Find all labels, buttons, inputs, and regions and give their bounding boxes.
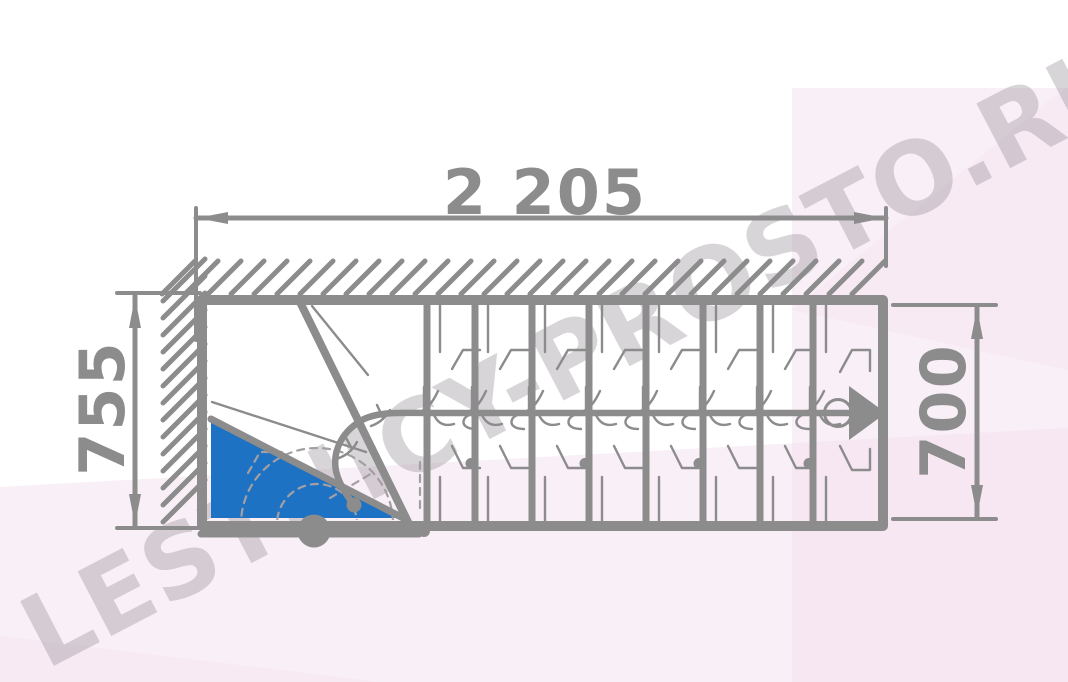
wall-hatch-top <box>162 261 885 294</box>
dim-arrow-up-icon <box>971 308 983 339</box>
walk-line-start-dot <box>347 498 362 513</box>
walk-line-under-curve <box>653 415 673 425</box>
walk-line-under-curve <box>434 415 454 425</box>
dim-arrow-down-icon <box>129 494 141 525</box>
fastener-dot <box>804 458 815 469</box>
stringer-detail-top <box>785 350 813 369</box>
walk-line-under-curve <box>482 415 502 425</box>
stringer-detail-bottom <box>728 446 756 468</box>
fastener-dot <box>580 458 591 469</box>
dim-label-left-width: 755 <box>66 340 139 475</box>
dimension-total-length: 2 205 <box>196 156 886 340</box>
dim-label-right-width: 700 <box>907 343 980 478</box>
dim-arrow-left-icon <box>197 212 228 224</box>
fastener-dot <box>694 458 705 469</box>
fastener-dot <box>466 458 477 469</box>
drawing-layer: 2 205 755 700 <box>0 0 1068 682</box>
walk-line-under-curve <box>710 415 730 425</box>
dim-label-total-length: 2 205 <box>443 156 647 229</box>
stringer-detail-top <box>840 350 870 372</box>
stringer-detail-bottom <box>840 446 870 470</box>
dimension-right-width: 700 <box>893 305 996 519</box>
walk-line-under-curve <box>596 415 616 425</box>
dim-arrow-up-icon <box>129 297 141 328</box>
walk-line-under-curve <box>767 415 787 425</box>
dim-arrow-right-icon <box>854 212 885 224</box>
stringer-detail-bottom <box>500 446 528 468</box>
walk-line-under-curve <box>539 415 559 425</box>
stringer-detail-top <box>728 350 756 369</box>
stringer-detail-top <box>671 350 699 369</box>
newel-post <box>298 515 331 548</box>
dim-arrow-down-icon <box>971 485 983 516</box>
stringer-detail-bottom <box>614 446 642 468</box>
stringer-detail-top <box>557 350 585 369</box>
stringer-detail-top <box>614 350 642 369</box>
stair-bottom-lip-cap <box>418 525 430 537</box>
staircase-plan <box>201 300 886 600</box>
stringer-detail-top <box>500 350 528 369</box>
blueprint-canvas: LESTNICY-PROSTO.RU <box>0 0 1068 682</box>
